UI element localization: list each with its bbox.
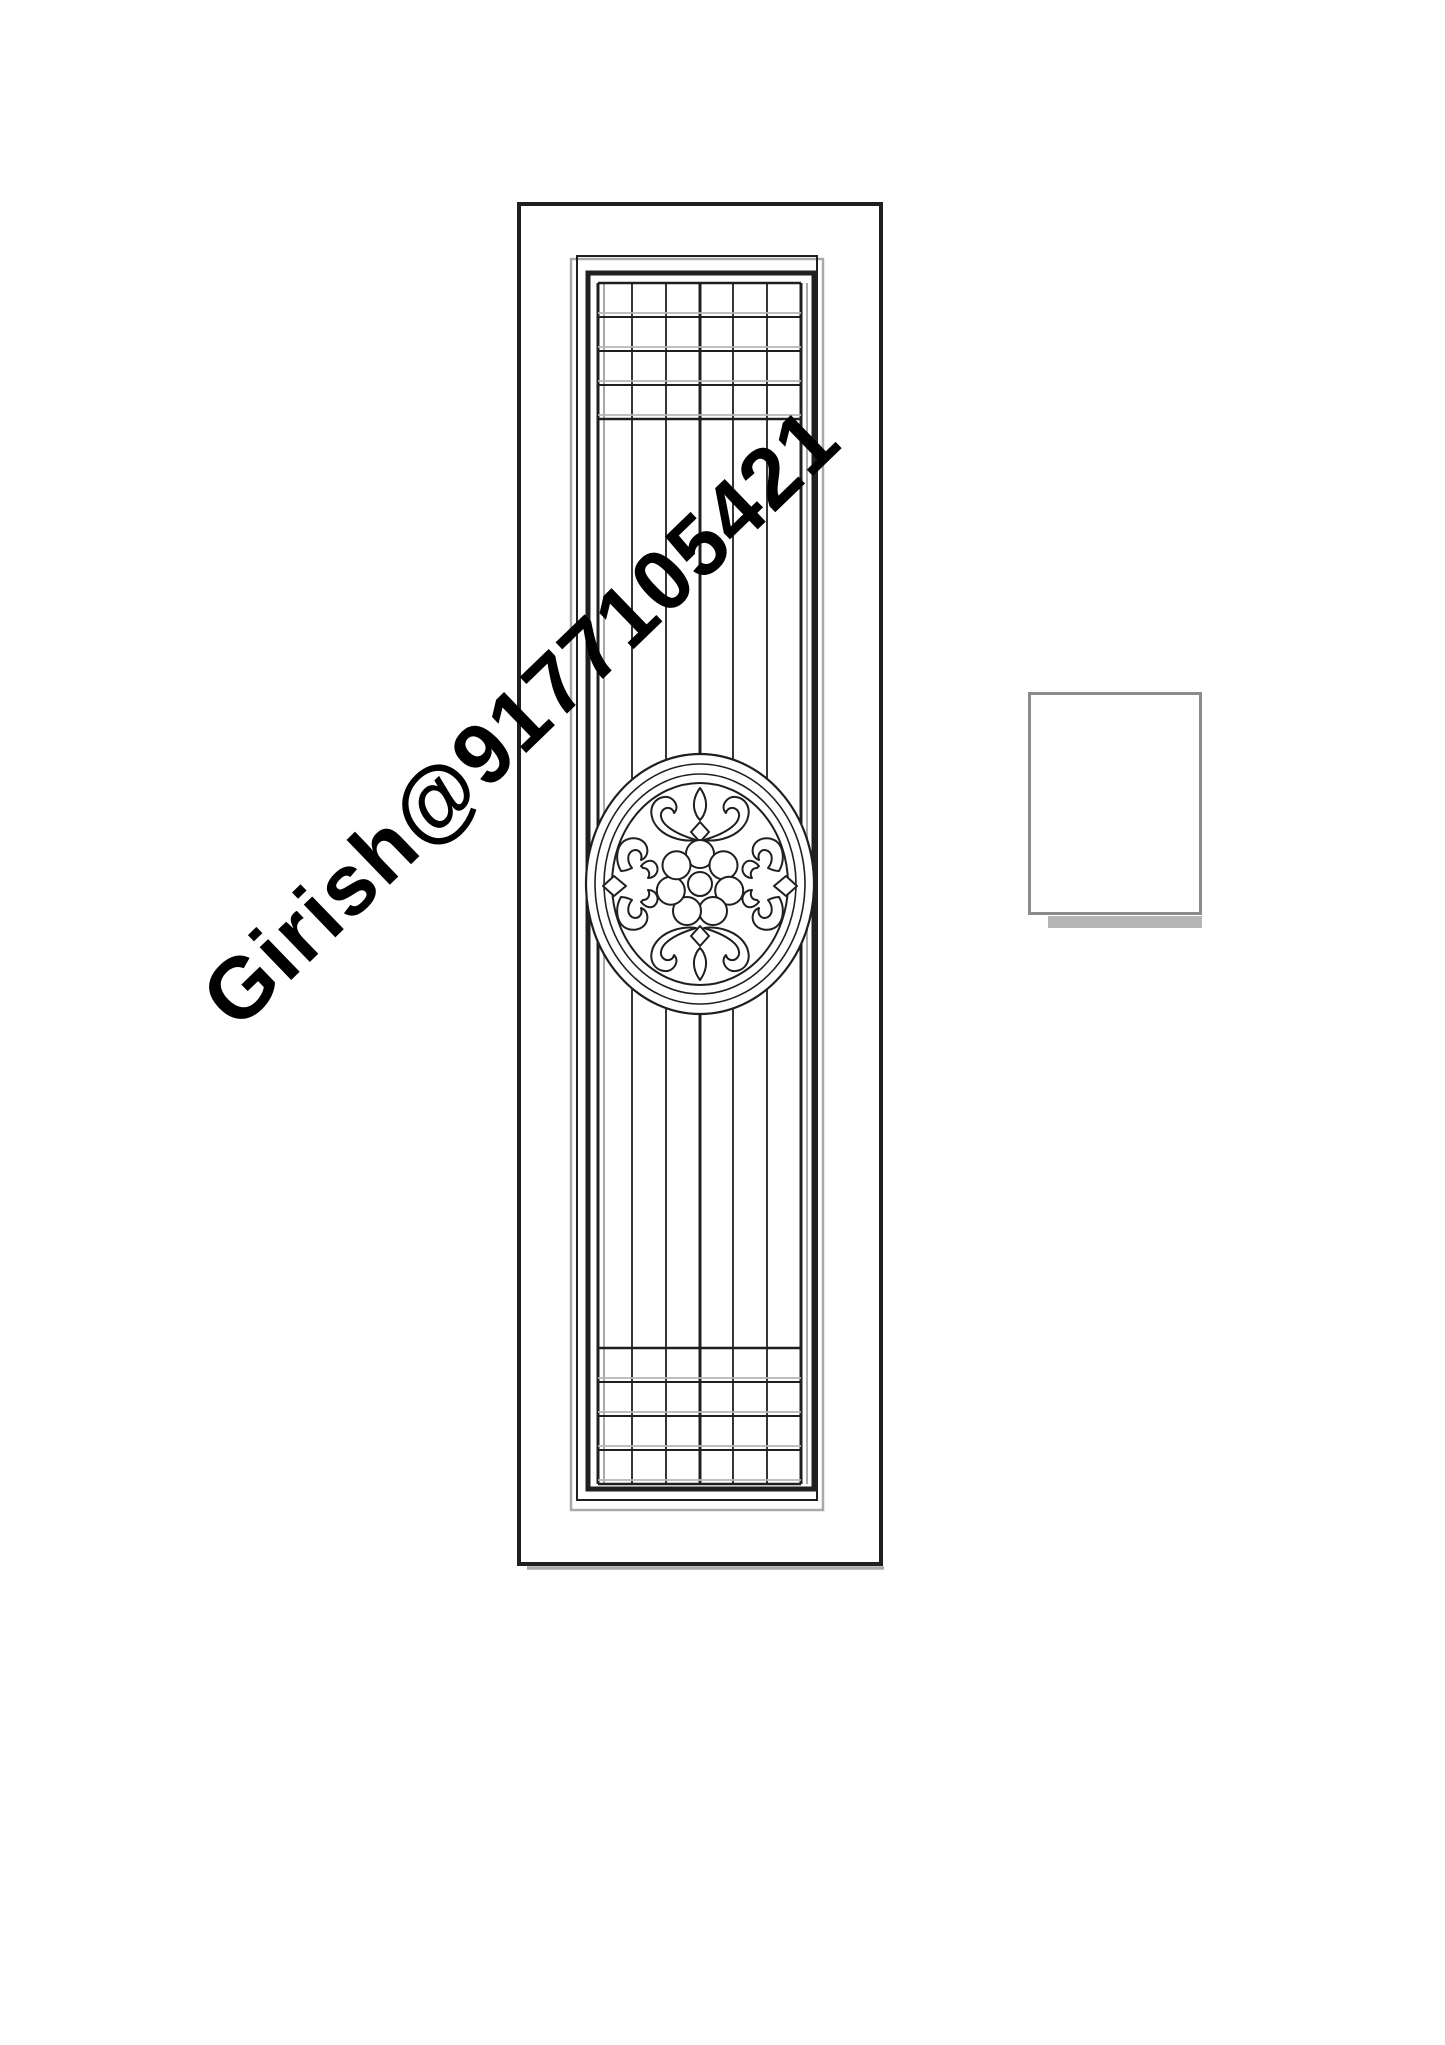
door-design-drawing <box>500 190 900 1590</box>
medallion <box>586 754 814 1014</box>
page: Girish@9177105421 <box>0 0 1445 2045</box>
panel-swatch-shadow <box>1048 916 1202 928</box>
blank-panel-swatch <box>1028 692 1202 915</box>
